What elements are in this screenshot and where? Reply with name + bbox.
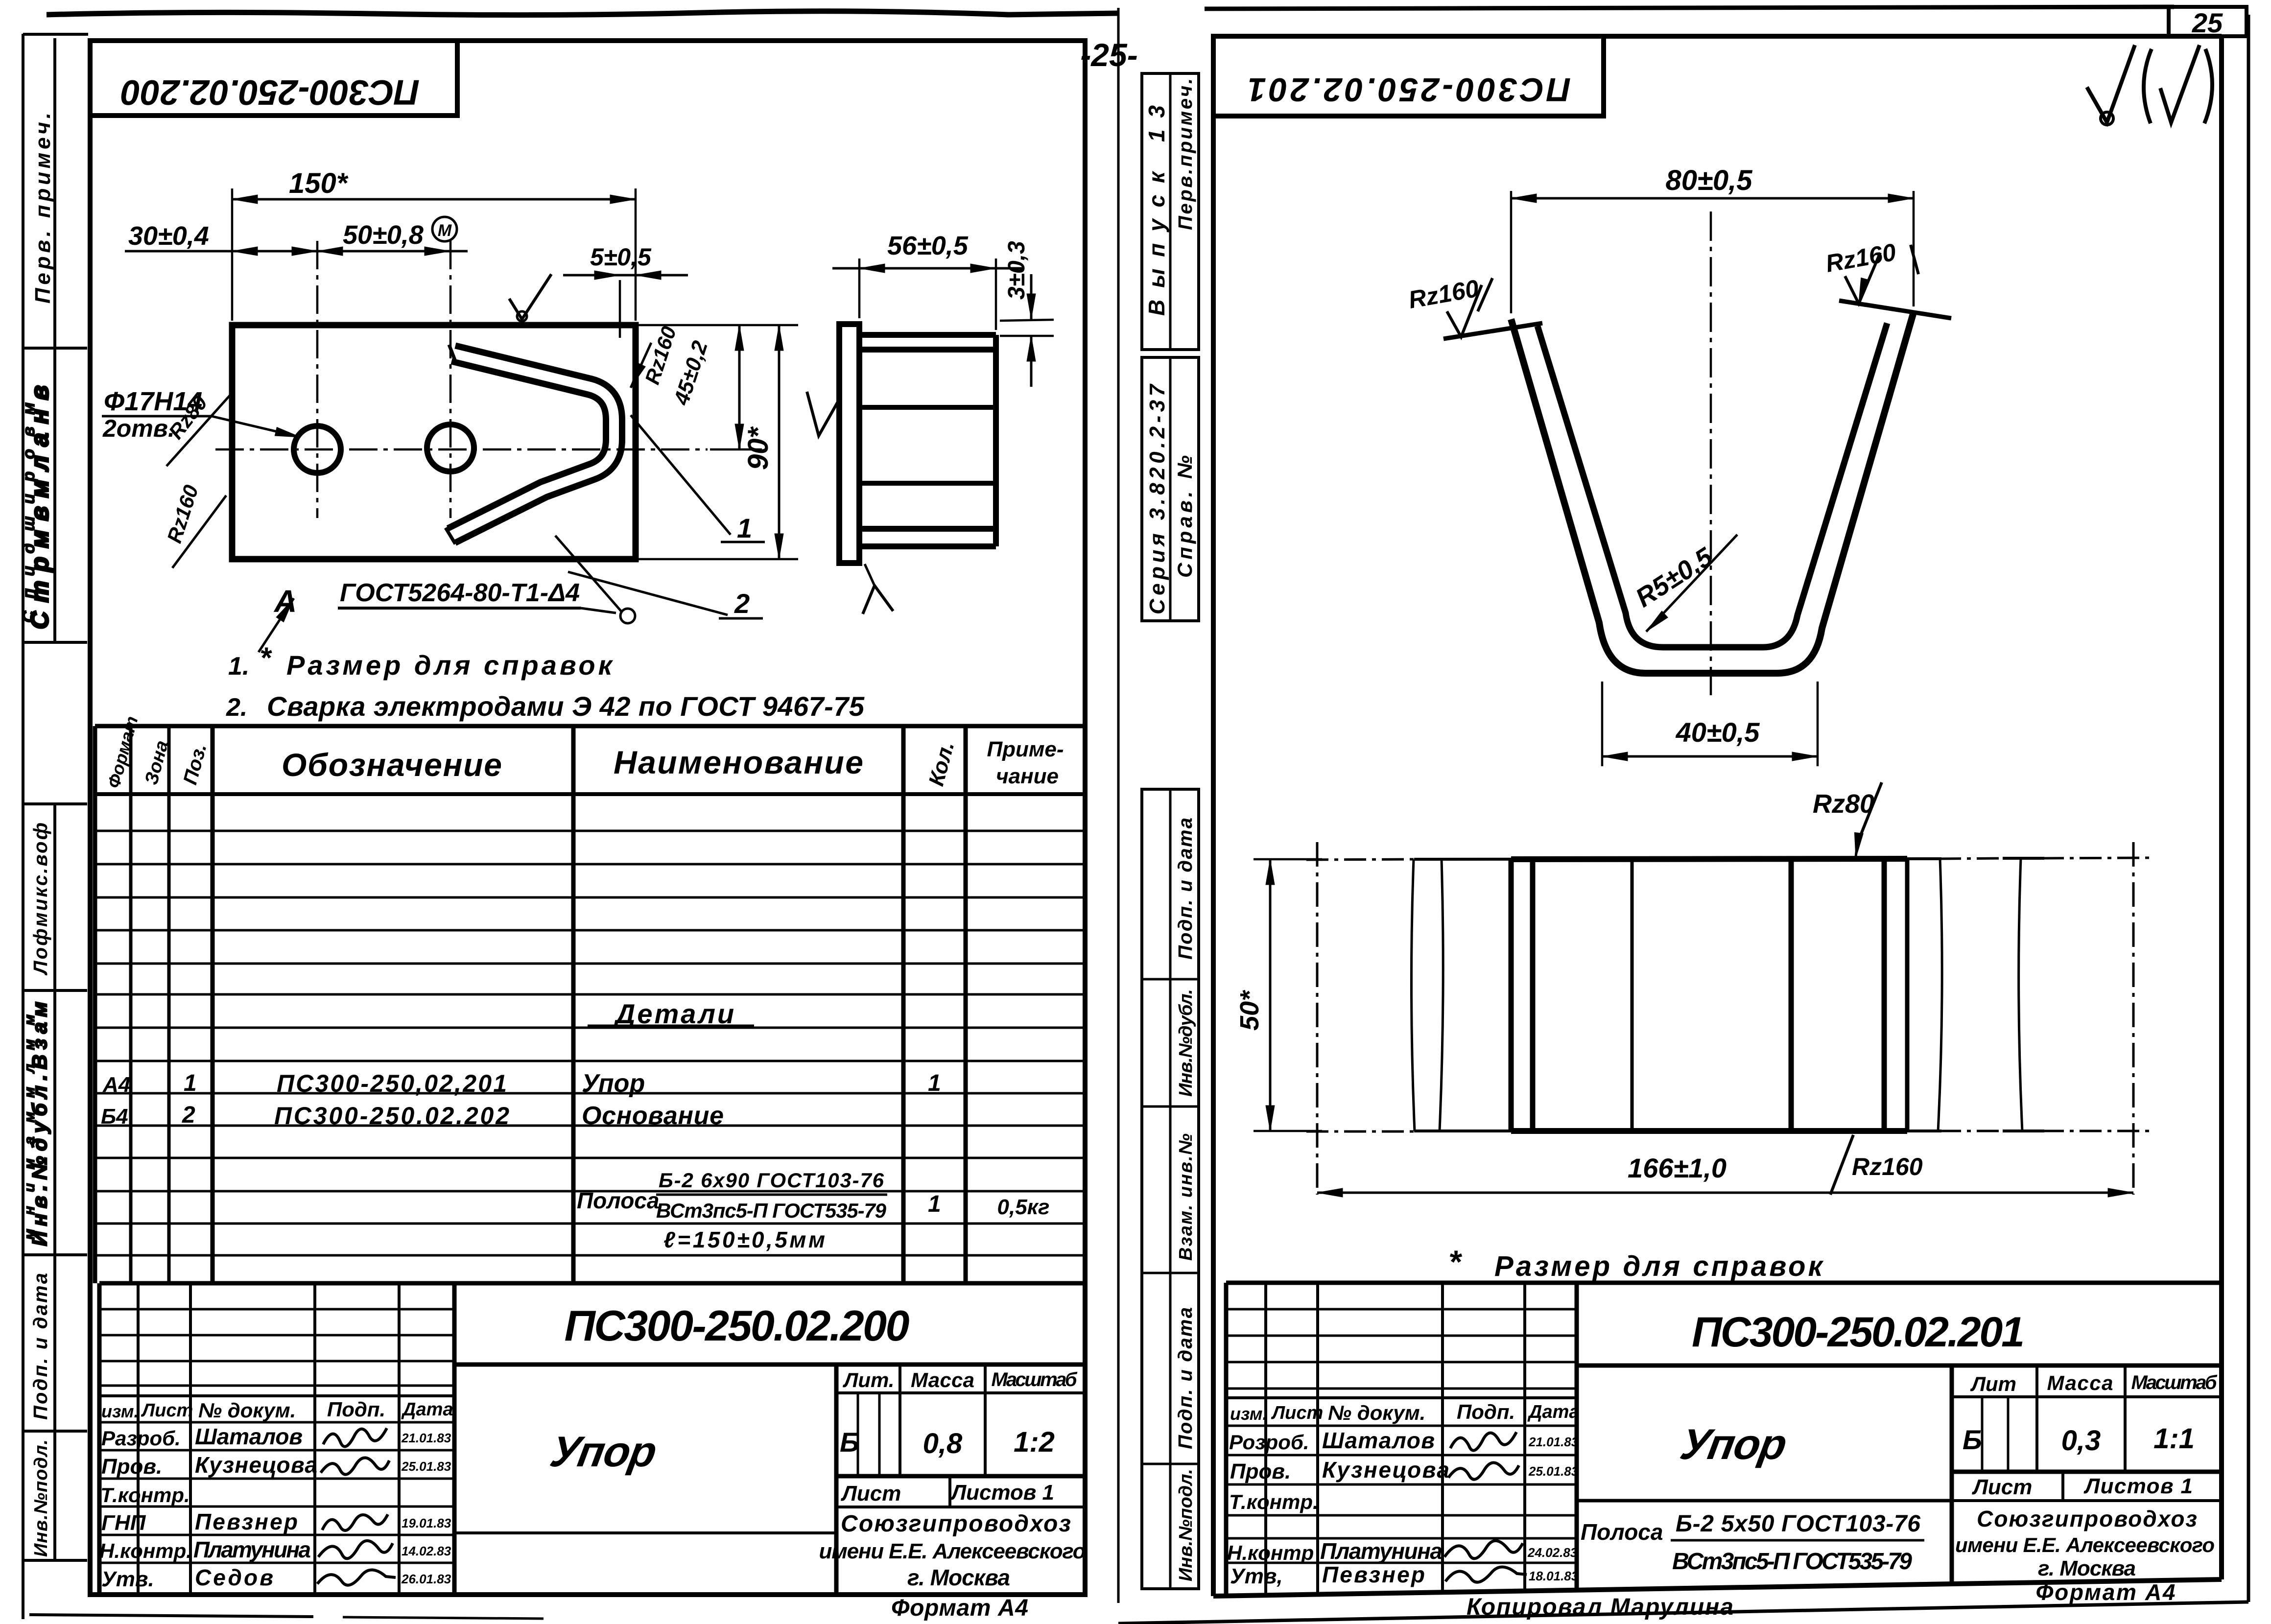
svg-text:Подп.: Подп. [327,1398,385,1421]
svg-text:1: 1 [928,1070,941,1096]
svg-text:Листов 1: Листов 1 [950,1481,1054,1505]
svg-text:М: М [438,221,452,240]
svg-text:Утв.: Утв. [101,1567,154,1591]
svg-text:Подп. и дата: Подп. и дата [1175,1307,1196,1449]
svg-text:Rz160: Rz160 [1852,1153,1923,1180]
svg-text:Лит: Лит [1970,1372,2016,1395]
svg-text:Лист: Лист [1972,1475,2033,1499]
svg-text:Упор: Упор [582,1069,645,1098]
svg-text:Подп.: Подп. [1457,1400,1515,1423]
svg-text:чание: чание [996,764,1059,788]
svg-text:Б: Б [1963,1424,1982,1455]
svg-text:0,3: 0,3 [2061,1425,2101,1457]
svg-text:ВСт3пс5-П ГОСТ535-79: ВСт3пс5-П ГОСТ535-79 [656,1199,887,1222]
svg-text:Масштаб: Масштаб [992,1369,1078,1390]
svg-text:*: * [1448,1244,1463,1280]
svg-text:Полоса: Полоса [1581,1519,1663,1545]
svg-text:Лист: Лист [841,1482,901,1506]
svg-text:0,5кг: 0,5кг [997,1195,1050,1219]
svg-text:56±0,5: 56±0,5 [887,231,969,260]
svg-text:Н.контр.: Н.контр. [99,1539,192,1562]
svg-text:Дата: Дата [1527,1402,1580,1422]
svg-text:Шаталов: Шаталов [195,1424,303,1449]
svg-text:ℓ=150±0,5мм: ℓ=150±0,5мм [663,1227,825,1252]
svg-text:Инв.№дубл.: Инв.№дубл. [1176,989,1196,1097]
svg-text:Серия 3.820.2-37: Серия 3.820.2-37 [1145,383,1169,614]
svg-text:26.01.83: 26.01.83 [401,1572,451,1586]
svg-text:Упор: Упор [547,1428,661,1476]
svg-text:Кузнецова: Кузнецова [1322,1457,1449,1483]
svg-text:3±0,3: 3±0,3 [1004,241,1030,300]
svg-text:ГНП: ГНП [101,1511,146,1535]
svg-text:1:2: 1:2 [1014,1426,1055,1458]
svg-text:Формат А4: Формат А4 [2036,1579,2176,1605]
svg-text:21.01.83: 21.01.83 [1528,1435,1579,1449]
svg-text:18.01.83: 18.01.83 [1529,1569,1579,1583]
svg-text:21.01.83: 21.01.83 [401,1431,451,1445]
svg-text:Наименование: Наименование [614,744,863,780]
svg-text:Полоса: Полоса [577,1188,659,1213]
svg-text:14.02.83: 14.02.83 [402,1544,451,1558]
svg-text:Б: Б [840,1427,859,1458]
svg-text:Н.контр: Н.контр [1227,1541,1314,1564]
svg-text:1:1: 1:1 [2153,1423,2195,1455]
svg-text:Б-2 6х90 ГОСТ103-76: Б-2 6х90 ГОСТ103-76 [659,1169,884,1192]
svg-text:Б-2 5х50 ГОСТ103-76: Б-2 5х50 ГОСТ103-76 [1676,1511,1920,1537]
svg-text:90*: 90* [742,426,774,470]
svg-text:Масштаб: Масштаб [2131,1372,2218,1393]
svg-text:Дата: Дата [401,1399,453,1420]
svg-text:ПС300-250,02,201: ПС300-250,02,201 [277,1070,507,1097]
svg-text:50*: 50* [1235,989,1264,1031]
svg-text:Формат А4: Формат А4 [891,1595,1028,1621]
svg-text:Союзгипроводхоз: Союзгипроводхоз [841,1511,1071,1537]
svg-text:изм.: изм. [101,1401,139,1421]
svg-text:80±0,5: 80±0,5 [1666,165,1753,196]
svg-text:1: 1 [928,1191,941,1217]
svg-text:изм.: изм. [1230,1404,1268,1424]
svg-text:25: 25 [2192,7,2223,38]
svg-text:А4: А4 [102,1073,130,1097]
svg-text:г. Москва: г. Москва [907,1565,1010,1590]
svg-text:*: * [260,641,272,674]
svg-text:0,8: 0,8 [923,1428,963,1459]
svg-text:Утв,: Утв, [1230,1564,1283,1588]
svg-text:Т.контр.: Т.контр. [1229,1490,1319,1513]
svg-text:Розроб.: Розроб. [1229,1431,1309,1454]
svg-text:Масса: Масса [911,1368,974,1391]
svg-text:ПС300-250.02.200: ПС300-250.02.200 [565,1301,910,1350]
svg-text:Разроб.: Разроб. [101,1427,181,1450]
svg-text:ВСт3пс5-П ГОСТ535-79: ВСт3пс5-П ГОСТ535-79 [1672,1549,1912,1575]
svg-text:ПС300-250.02.202: ПС300-250.02.202 [274,1102,509,1130]
svg-text:Лофмикс.воф: Лофмикс.воф [30,823,51,976]
svg-text:1: 1 [184,1070,197,1096]
svg-text:Справ. №: Справ. № [1173,455,1196,578]
svg-text:г. Москва: г. Москва [2038,1556,2136,1580]
svg-text:Лит.: Лит. [843,1368,895,1391]
svg-text:2: 2 [182,1102,195,1128]
svg-text:150*: 150* [289,167,349,199]
svg-text:24.02.83: 24.02.83 [1527,1545,1578,1560]
svg-text:Лист: Лист [141,1400,193,1421]
svg-text:Взам. инв.№: Взам. инв.№ [1176,1133,1196,1261]
svg-text:Rz80: Rz80 [1813,789,1874,819]
svg-text:Пров.: Пров. [101,1455,162,1479]
svg-text:Инв.№подл.: Инв.№подл. [1176,1469,1196,1581]
svg-text:Платунина: Платунина [1320,1538,1443,1564]
svg-text:Седов: Седов [195,1565,273,1590]
svg-text:Подп. и дата: Подп. и дата [1175,818,1196,960]
svg-text:ГОСТ5264-80-Т1-Δ4: ГОСТ5264-80-Т1-Δ4 [340,579,580,607]
svg-text:Пров.: Пров. [1230,1459,1291,1483]
svg-text:Инв.№подл.: Инв.№подл. [31,1439,51,1557]
svg-text:25.01.83: 25.01.83 [401,1459,451,1474]
svg-text:30±0,4: 30±0,4 [128,221,209,251]
svg-text:№ докум.: № докум. [198,1399,296,1422]
svg-text:2.: 2. [226,693,247,722]
svg-text:1.: 1. [228,652,249,681]
svg-text:Лист: Лист [1271,1403,1323,1423]
svg-text:Перв. примеч.: Перв. примеч. [31,113,55,304]
svg-text:40±0,5: 40±0,5 [1676,717,1760,748]
svg-text:25.01.83: 25.01.83 [1528,1464,1579,1479]
svg-text:2: 2 [734,588,750,619]
svg-text:Союзгипроводхоз: Союзгипроводхоз [1977,1506,2197,1531]
svg-text:ПС300-250.02.200: ПС300-250.02.200 [121,72,420,112]
svg-text:166±1,0: 166±1,0 [1628,1153,1727,1183]
svg-text:Обозначение: Обозначение [282,747,502,783]
svg-text:Певзнер: Певзнер [1322,1562,1425,1587]
svg-text:Подп. и дата: Подп. и дата [30,1273,51,1420]
svg-text:Копировал Марулина: Копировал Марулина [1467,1594,1733,1620]
svg-text:ПС300-250.02.201: ПС300-250.02.201 [1692,1309,2025,1356]
svg-text:Упор: Упор [1677,1420,1791,1468]
svg-text:Сварка электродами Э 42 по Г: Сварка электродами Э 42 по ГОСТ 9467-75 [267,691,865,722]
svg-text:№ докум.: № докум. [1328,1401,1425,1424]
svg-text:Певзнер: Певзнер [195,1509,298,1534]
svg-text:Основание: Основание [582,1102,724,1130]
svg-text:имени Е.Е. Алексеевского: имени Е.Е. Алексеевского [819,1539,1086,1563]
svg-text:Б4: Б4 [101,1105,128,1129]
svg-text:19.01.83: 19.01.83 [402,1516,451,1530]
svg-text:-25-: -25- [1080,37,1137,73]
svg-text:Шаталов: Шаталов [1322,1428,1435,1453]
svg-text:Приме-: Приме- [987,737,1064,761]
svg-text:Размер для справок: Размер для справок [286,650,614,681]
svg-text:1: 1 [737,513,752,543]
svg-text:50±0,8: 50±0,8 [343,220,424,250]
svg-text:Размер для справок: Размер для справок [1494,1250,1824,1282]
svg-text:2отв.: 2отв. [102,415,175,442]
svg-text:Масса: Масса [2047,1371,2113,1394]
svg-text:имени Е.Е. Алексеевского: имени Е.Е. Алексеевского [1955,1533,2215,1556]
svg-text:Т.контр.: Т.контр. [100,1483,190,1506]
svg-text:ПС300-250.02.201: ПС300-250.02.201 [1248,71,1571,108]
svg-text:Кузнецова: Кузнецова [195,1452,317,1478]
svg-text:Платунина: Платунина [193,1537,311,1562]
svg-text:5±0,5: 5±0,5 [590,243,652,271]
